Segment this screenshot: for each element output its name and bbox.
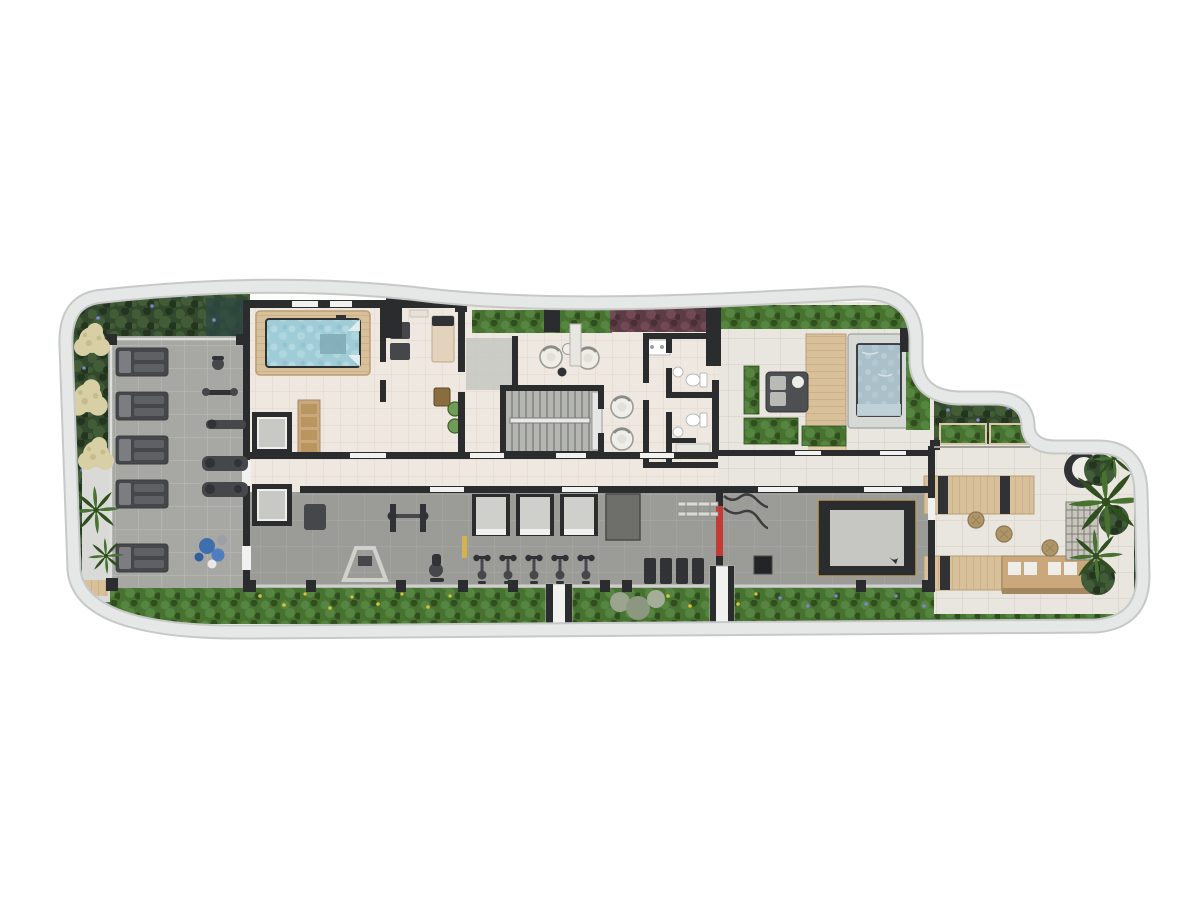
lobby-armchair xyxy=(611,428,633,450)
pouf xyxy=(996,526,1012,542)
planter xyxy=(802,426,846,446)
sunbed xyxy=(116,480,168,508)
wood-table-long xyxy=(924,476,1034,514)
planter xyxy=(744,418,798,444)
pool-ladder xyxy=(336,315,346,319)
workout-platform xyxy=(516,494,554,536)
indoor-pool-room xyxy=(256,311,370,375)
storage-cabinet xyxy=(606,494,640,540)
garden-gate xyxy=(546,584,572,628)
side-walkway xyxy=(82,456,110,602)
sunbed xyxy=(116,436,168,464)
hedge-green-deck xyxy=(720,305,908,329)
elevator xyxy=(252,412,292,454)
corridor-floor xyxy=(718,450,934,492)
yellow-mat xyxy=(462,536,467,558)
coffee-table xyxy=(558,368,567,377)
elevator xyxy=(252,484,292,526)
sink xyxy=(673,367,683,377)
planter xyxy=(744,366,759,414)
trellis xyxy=(1066,502,1098,560)
weight-machine xyxy=(304,504,326,530)
lobby-armchair xyxy=(611,396,633,418)
toilet xyxy=(686,373,707,387)
stair-vestibule xyxy=(466,338,516,390)
floor-plan-rendering xyxy=(0,0,1200,919)
floor-plan-page xyxy=(0,0,1200,919)
garden-gate xyxy=(710,566,734,624)
stretch-platform xyxy=(818,500,916,576)
lobby-armchair xyxy=(540,346,562,368)
pouf xyxy=(968,512,984,528)
toilet xyxy=(686,413,707,427)
sunbed xyxy=(116,392,168,420)
sunbed xyxy=(116,348,168,376)
pool-bench xyxy=(320,334,346,354)
lounge-sofa xyxy=(766,372,808,412)
console-table xyxy=(570,324,581,366)
plyo-box xyxy=(754,556,772,574)
planter-box xyxy=(940,424,986,444)
pouf xyxy=(1042,540,1058,556)
sink xyxy=(673,427,683,437)
sunbed xyxy=(116,544,168,572)
wood-bench-low xyxy=(924,556,1002,590)
workout-platform xyxy=(560,494,598,536)
workout-platform xyxy=(472,494,510,536)
hedge-green-lobby xyxy=(472,310,612,333)
locker-cabinet xyxy=(298,400,320,456)
